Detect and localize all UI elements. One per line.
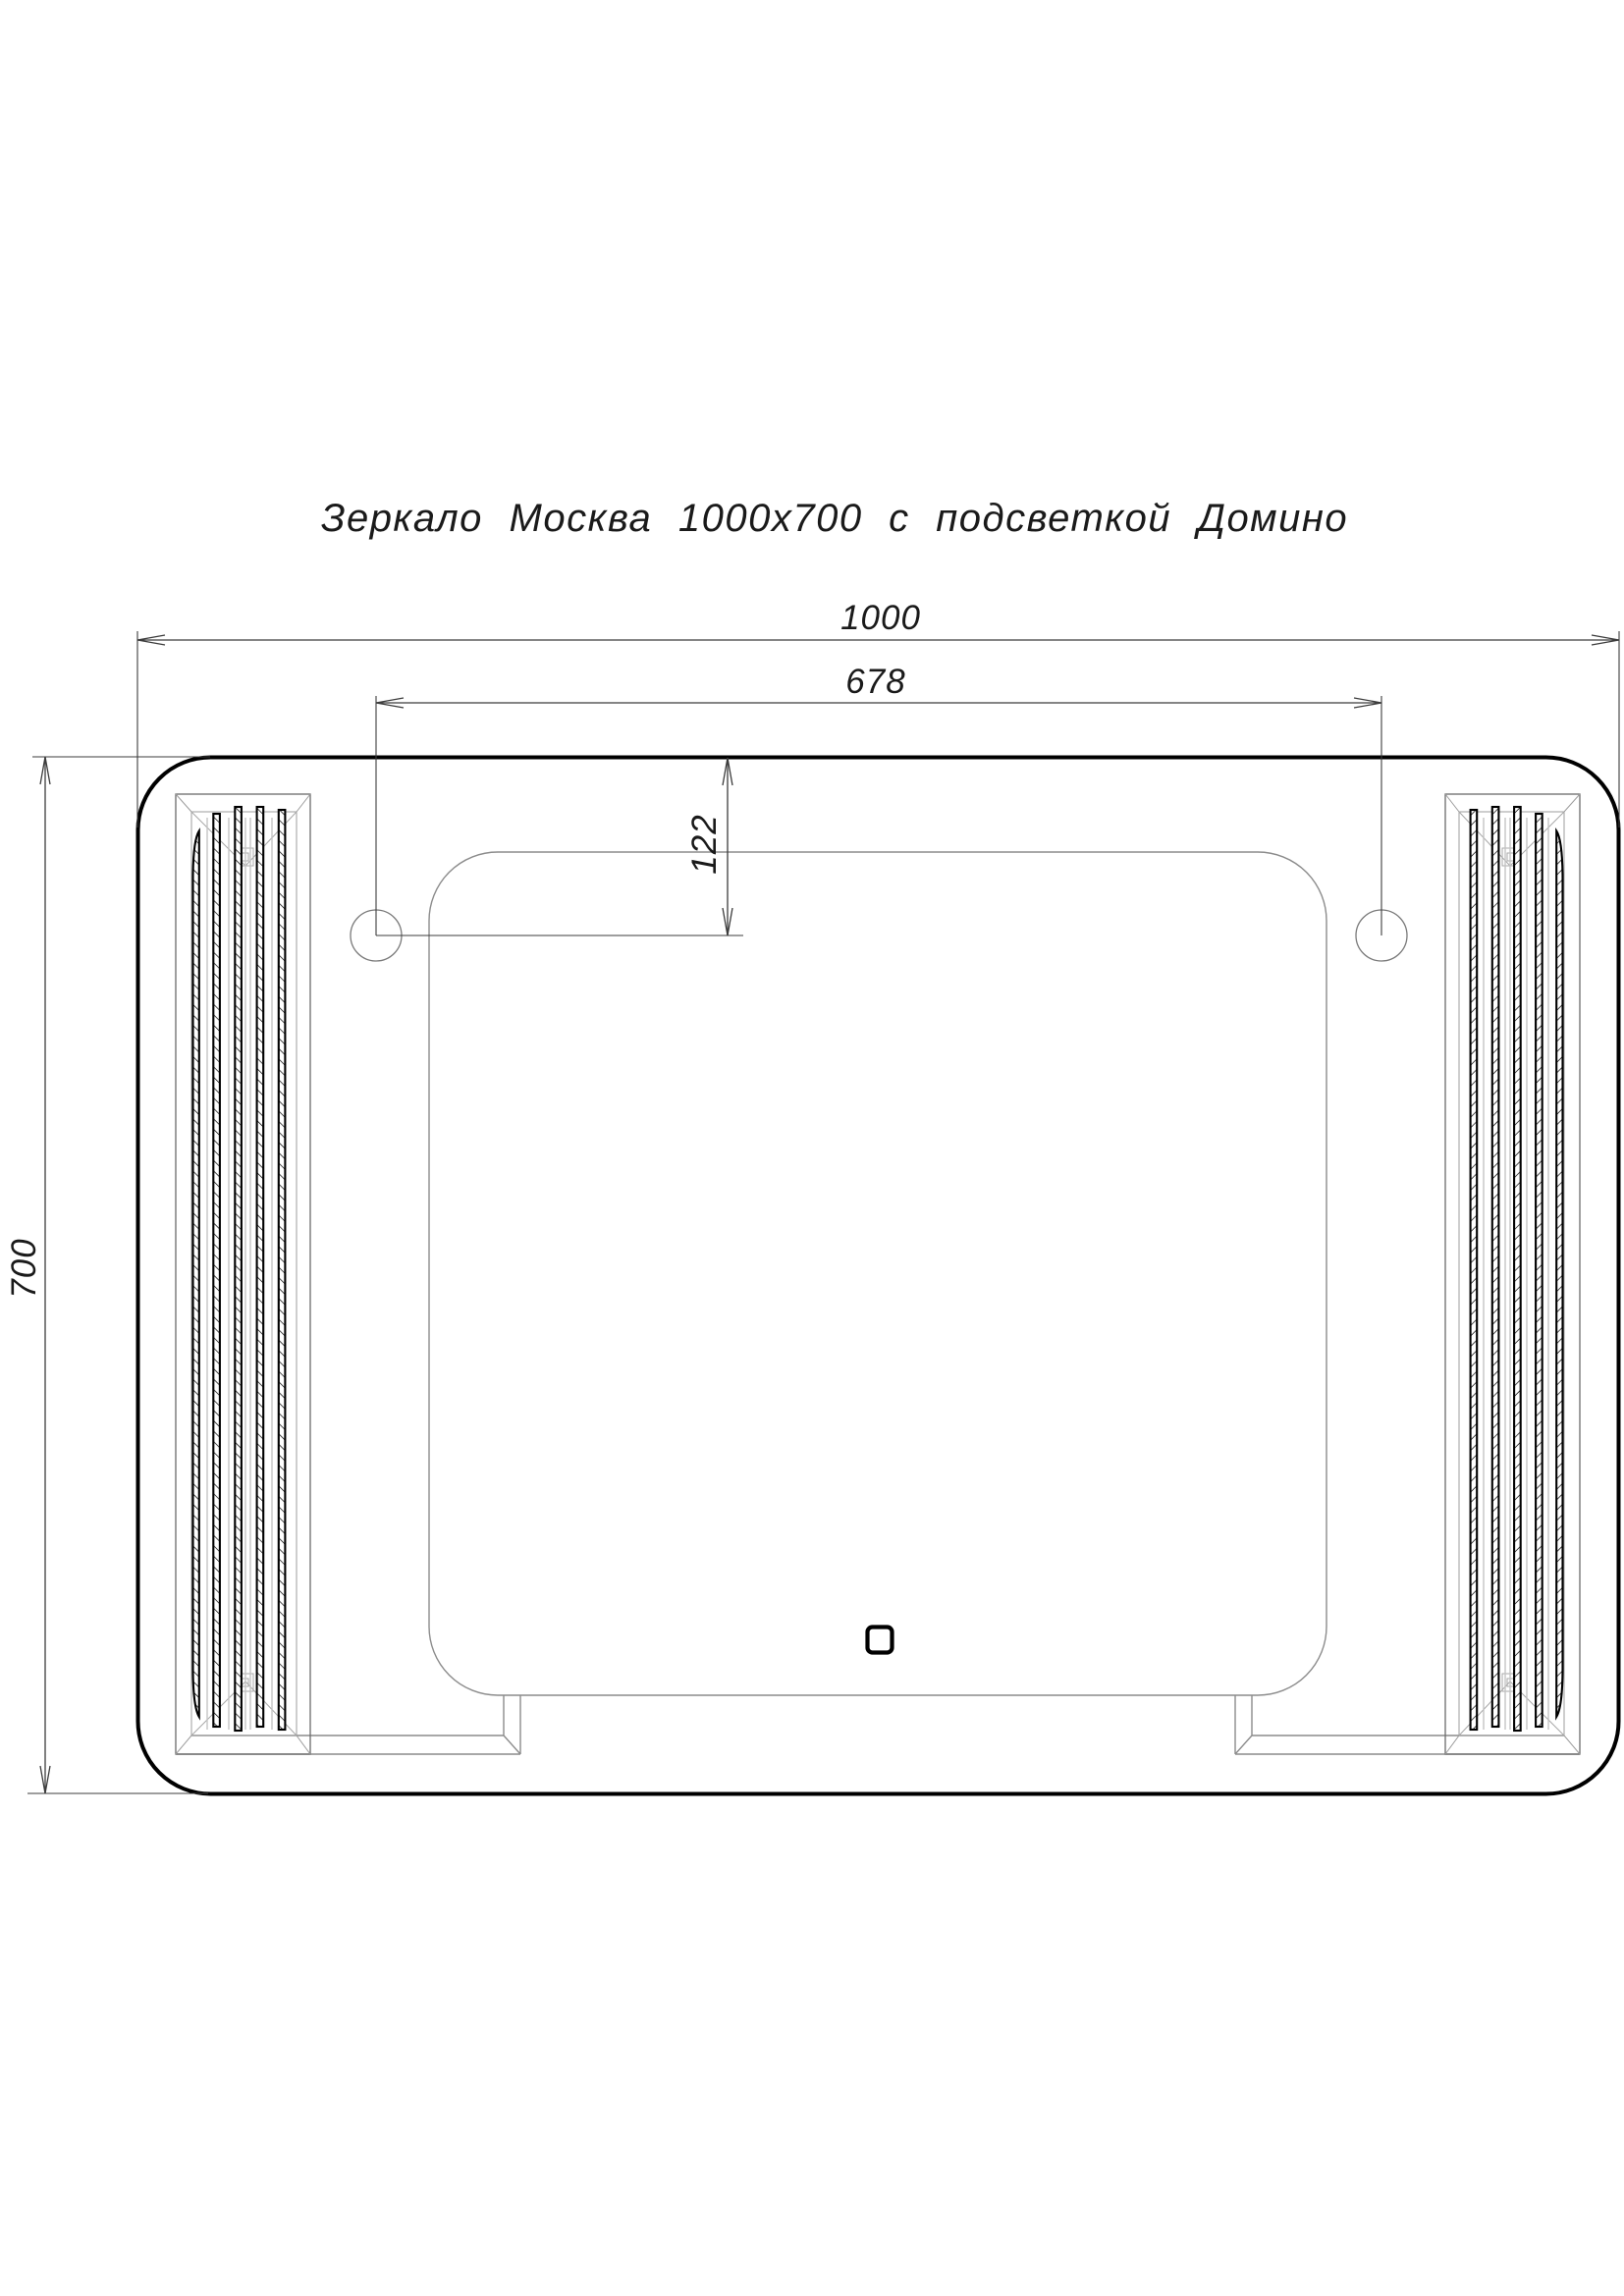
dim-hole-offset-label: 122 bbox=[685, 814, 724, 874]
dim-total-height-label: 700 bbox=[5, 1238, 43, 1298]
dim-hole-spacing-label: 678 bbox=[845, 663, 905, 701]
technical-drawing: Зеркало Москва 1000х700 с подсветкой Дом… bbox=[0, 0, 1624, 2296]
drawing-background bbox=[0, 0, 1624, 2296]
touch-sensor bbox=[868, 1628, 893, 1653]
dim-total-width-label: 1000 bbox=[840, 599, 921, 637]
drawing-title: Зеркало Москва 1000х700 с подсветкой Дом… bbox=[321, 497, 1348, 540]
